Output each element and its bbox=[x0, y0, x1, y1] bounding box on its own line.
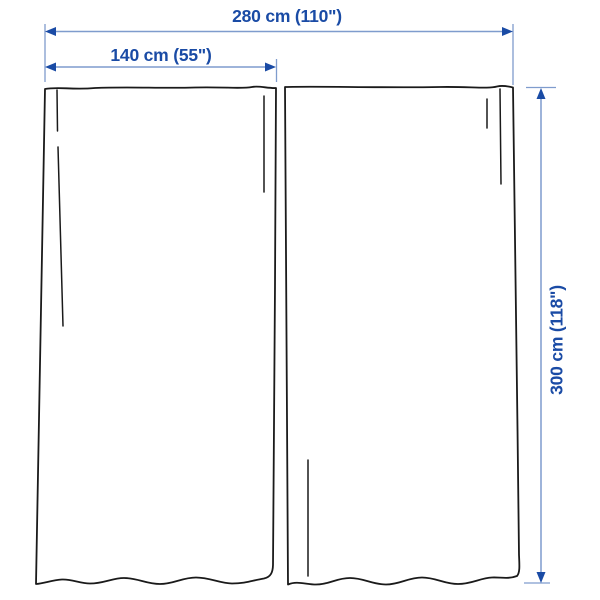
right-panel-outline bbox=[285, 86, 519, 585]
curtain-dimension-diagram: 280 cm (110") 140 cm (55") 300 cm (118") bbox=[0, 0, 600, 600]
arrow-right-icon bbox=[265, 63, 276, 72]
arrow-left-icon bbox=[45, 27, 56, 36]
arrow-right-icon bbox=[502, 27, 513, 36]
panel-width-label: 140 cm (55") bbox=[110, 47, 211, 65]
arrow-up-icon bbox=[537, 88, 546, 99]
left-curtain-panel bbox=[36, 87, 276, 584]
height-label: 300 cm (118") bbox=[548, 285, 566, 395]
right-panel-fold-line bbox=[500, 89, 501, 184]
right-curtain-panel bbox=[285, 86, 519, 585]
arrow-left-icon bbox=[45, 63, 56, 72]
arrow-down-icon bbox=[537, 572, 546, 583]
left-panel-outline bbox=[36, 87, 276, 584]
total-width-label: 280 cm (110") bbox=[232, 8, 342, 26]
diagram-artwork bbox=[0, 0, 600, 600]
left-panel-fold-line bbox=[57, 90, 58, 131]
